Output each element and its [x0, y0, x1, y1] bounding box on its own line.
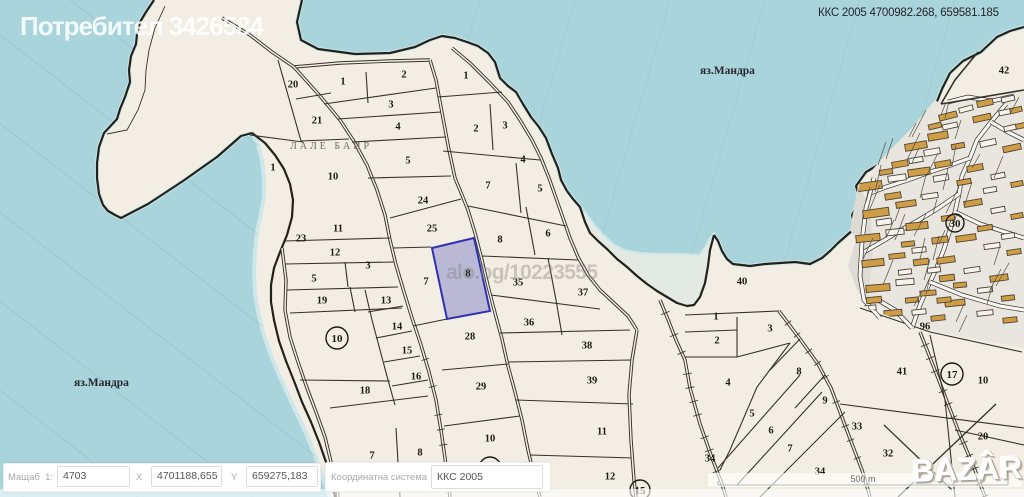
svg-text:2: 2 [714, 336, 719, 347]
svg-text:12: 12 [605, 472, 616, 483]
svg-text:ККС 2005 4700982.268, 659581.1: ККС 2005 4700982.268, 659581.185 [818, 7, 999, 19]
svg-text:8: 8 [417, 448, 422, 459]
svg-text:5: 5 [749, 409, 754, 420]
svg-text:1: 1 [463, 71, 468, 82]
svg-text:8: 8 [796, 367, 801, 378]
svg-text:4: 4 [520, 155, 526, 166]
svg-text:5: 5 [537, 184, 542, 195]
svg-text:28: 28 [465, 332, 476, 343]
svg-text:1: 1 [340, 77, 345, 88]
svg-text:21: 21 [312, 116, 323, 127]
svg-text:10: 10 [978, 376, 989, 387]
svg-text:5: 5 [311, 274, 316, 285]
svg-text:10: 10 [328, 172, 339, 183]
svg-text:10: 10 [485, 434, 496, 445]
svg-text:3: 3 [365, 261, 370, 272]
svg-text:20: 20 [978, 432, 989, 443]
svg-text:3: 3 [767, 324, 772, 335]
svg-text:яз.Мандра: яз.Мандра [74, 377, 129, 389]
svg-text:96: 96 [920, 322, 931, 333]
svg-text:16: 16 [411, 372, 422, 383]
svg-text:12: 12 [330, 248, 341, 259]
svg-text:42: 42 [999, 66, 1010, 77]
svg-text:15: 15 [402, 346, 413, 357]
svg-text:5: 5 [405, 156, 410, 167]
svg-text:41: 41 [897, 367, 908, 378]
svg-text:1: 1 [270, 163, 275, 174]
svg-text:500 m: 500 m [850, 474, 875, 484]
svg-text:ЛАЛЕ БАИР: ЛАЛЕ БАИР [290, 141, 372, 152]
svg-text:23: 23 [296, 234, 307, 245]
svg-text:36: 36 [524, 318, 535, 329]
svg-text:4: 4 [395, 122, 401, 133]
svg-text:7: 7 [485, 181, 490, 192]
svg-text:2: 2 [473, 124, 478, 135]
svg-text:32: 32 [883, 449, 894, 460]
svg-text:7: 7 [787, 444, 792, 455]
svg-text:25: 25 [427, 224, 438, 235]
svg-text:20: 20 [288, 80, 299, 91]
svg-text:29: 29 [476, 382, 487, 393]
svg-text:6: 6 [768, 426, 773, 437]
svg-text:11: 11 [333, 224, 343, 235]
svg-text:6: 6 [545, 229, 550, 240]
svg-text:19: 19 [317, 296, 328, 307]
svg-text:7: 7 [369, 451, 374, 462]
svg-text:1: 1 [713, 312, 718, 323]
svg-text:яз.Мандра: яз.Мандра [700, 65, 755, 77]
svg-text:18: 18 [360, 386, 371, 397]
svg-text:Потребител 3426584: Потребител 3426584 [20, 11, 265, 41]
svg-text:7: 7 [423, 277, 428, 288]
svg-text:40: 40 [737, 277, 748, 288]
svg-text:11: 11 [597, 427, 607, 438]
svg-text:39: 39 [587, 376, 598, 387]
svg-text:33: 33 [852, 422, 863, 433]
svg-text:14: 14 [392, 322, 403, 333]
svg-text:alo.bg/10223555: alo.bg/10223555 [446, 261, 598, 284]
svg-text:4: 4 [725, 378, 731, 389]
svg-text:13: 13 [381, 296, 392, 307]
svg-text:37: 37 [578, 288, 589, 299]
svg-text:24: 24 [418, 196, 429, 207]
svg-text:2: 2 [401, 70, 406, 81]
svg-text:10: 10 [332, 333, 344, 345]
svg-text:8: 8 [497, 235, 502, 246]
svg-text:17: 17 [947, 369, 959, 381]
svg-text:9: 9 [822, 396, 827, 407]
svg-text:34: 34 [705, 454, 716, 465]
svg-text:3: 3 [502, 121, 507, 132]
svg-text:38: 38 [582, 341, 593, 352]
svg-text:30: 30 [950, 218, 962, 230]
svg-text:3: 3 [388, 100, 393, 111]
